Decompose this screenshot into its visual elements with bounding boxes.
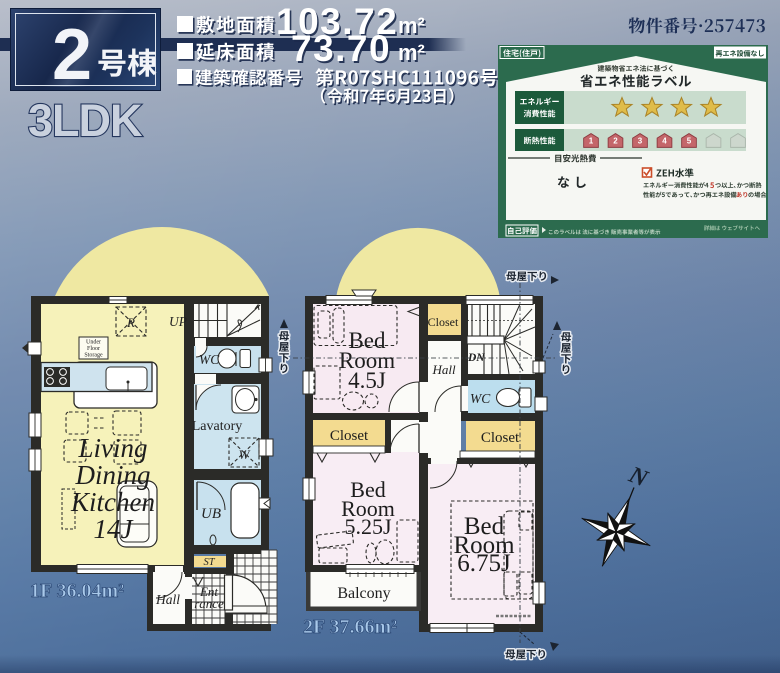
svg-text:4.5J: 4.5J bbox=[348, 368, 386, 393]
svg-text:R: R bbox=[126, 315, 135, 330]
svg-text:Lavatory: Lavatory bbox=[192, 419, 243, 434]
svg-text:Closet: Closet bbox=[481, 430, 520, 446]
svg-text:1F 36.04m²: 1F 36.04m² bbox=[30, 580, 124, 602]
svg-text:WC: WC bbox=[199, 352, 220, 367]
svg-text:Floor: Floor bbox=[87, 346, 100, 352]
svg-text:Balcony: Balcony bbox=[337, 585, 390, 602]
svg-text:ST: ST bbox=[203, 557, 215, 568]
svg-text:Under: Under bbox=[86, 340, 101, 346]
svg-text:Kitchen: Kitchen bbox=[70, 487, 155, 517]
svg-text:Storage: Storage bbox=[84, 353, 103, 359]
svg-text:Dining: Dining bbox=[74, 460, 150, 490]
svg-text:WC: WC bbox=[470, 391, 491, 406]
svg-text:2F 37.66m²: 2F 37.66m² bbox=[303, 616, 397, 638]
svg-text:rance: rance bbox=[194, 596, 224, 611]
svg-text:UP: UP bbox=[169, 314, 187, 329]
svg-text:14J: 14J bbox=[94, 514, 135, 544]
svg-text:Closet: Closet bbox=[330, 428, 369, 444]
svg-text:Hall: Hall bbox=[155, 592, 180, 607]
svg-text:5.25J: 5.25J bbox=[344, 514, 392, 539]
svg-text:UB: UB bbox=[201, 506, 221, 522]
svg-text:Hall: Hall bbox=[431, 362, 456, 377]
svg-text:Closet: Closet bbox=[428, 315, 459, 329]
svg-text:6.75J: 6.75J bbox=[457, 550, 511, 577]
svg-text:W: W bbox=[239, 447, 251, 462]
svg-text:Living: Living bbox=[77, 433, 147, 463]
svg-text:N: N bbox=[624, 462, 652, 494]
